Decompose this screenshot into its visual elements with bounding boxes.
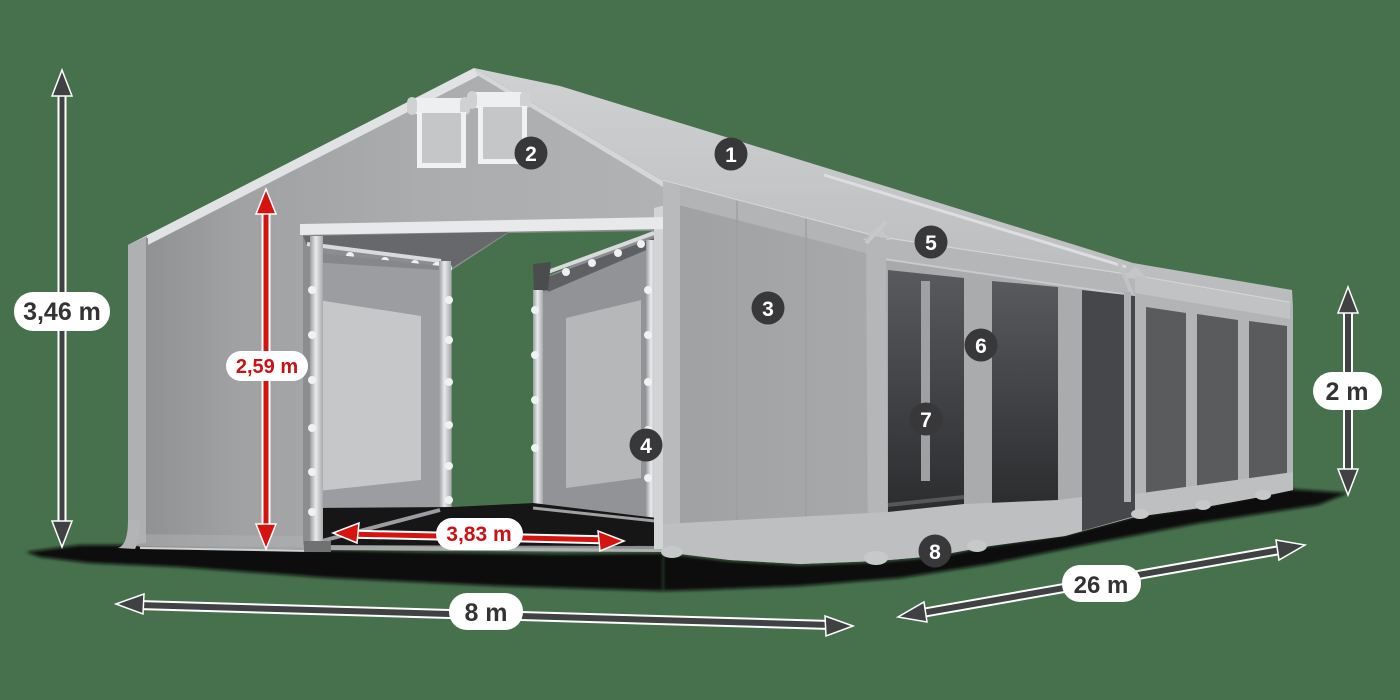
- svg-text:8 m: 8 m: [464, 599, 507, 627]
- svg-text:7: 7: [920, 409, 932, 432]
- svg-text:2: 2: [525, 143, 537, 166]
- svg-text:1: 1: [725, 144, 737, 167]
- svg-text:6: 6: [975, 335, 987, 358]
- svg-text:4: 4: [640, 435, 652, 458]
- svg-text:3,46 m: 3,46 m: [23, 298, 101, 326]
- svg-text:5: 5: [925, 232, 937, 255]
- svg-text:8: 8: [929, 541, 941, 564]
- svg-text:2,59 m: 2,59 m: [236, 356, 298, 378]
- svg-text:2 m: 2 m: [1325, 378, 1368, 406]
- svg-text:3: 3: [762, 298, 774, 321]
- svg-text:26 m: 26 m: [1074, 572, 1129, 599]
- svg-text:3,83 m: 3,83 m: [446, 523, 511, 546]
